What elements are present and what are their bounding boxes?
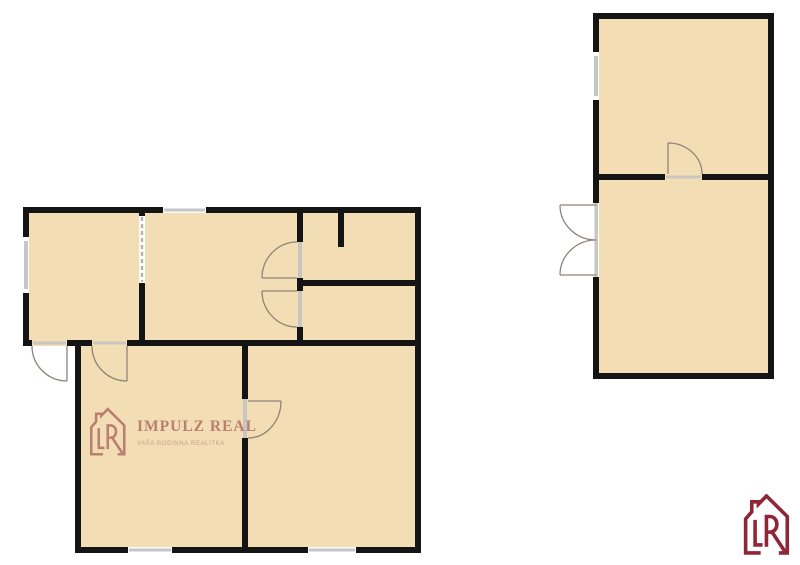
watermark-text: IMPULZ REAL VAŠA RODINNÁ REALITKA [137,418,257,447]
brand-tagline: VAŠA RODINNÁ REALITKA [137,441,257,447]
window-glass [164,209,205,212]
wall [139,207,145,216]
wall [75,340,81,553]
wall [356,547,421,553]
brand-name: IMPULZ REAL [137,418,257,436]
room-floor [23,207,421,346]
wall [415,207,421,553]
corner-logo [739,494,792,557]
wall [593,373,774,379]
watermark: IMPULZ REAL VAŠA RODINNÁ REALITKA [86,407,257,458]
house-r-logo-icon [86,407,128,458]
double-door-swing-arc [560,205,596,240]
wall [297,280,421,286]
wall [75,547,128,553]
door-opening [666,176,701,179]
door-opening [33,342,66,345]
door-opening [93,342,126,345]
wall [23,207,29,237]
wall [242,340,248,399]
wall [593,277,599,379]
house-r-logo-icon [739,494,792,557]
wall [172,547,308,553]
wall [593,13,599,52]
wall [139,283,145,346]
wall [593,100,599,203]
window-glass [24,241,28,289]
wall [593,13,774,19]
window-glass [594,56,598,96]
wall [127,340,421,346]
wall [23,340,32,346]
wall [593,174,665,180]
wall [702,174,768,180]
wall [23,293,29,346]
door-opening [298,291,302,327]
window-glass [129,549,171,552]
wall [23,207,421,213]
room-floor [593,13,774,379]
annex-floor-plan [556,13,774,379]
door-opening [298,242,302,278]
wall [338,207,344,247]
wall [297,207,303,242]
door-swing-arc [32,346,67,381]
main-floor-plan [23,207,421,553]
double-door-swing-arc [560,240,596,275]
window-glass [309,549,355,552]
wall [768,13,774,379]
